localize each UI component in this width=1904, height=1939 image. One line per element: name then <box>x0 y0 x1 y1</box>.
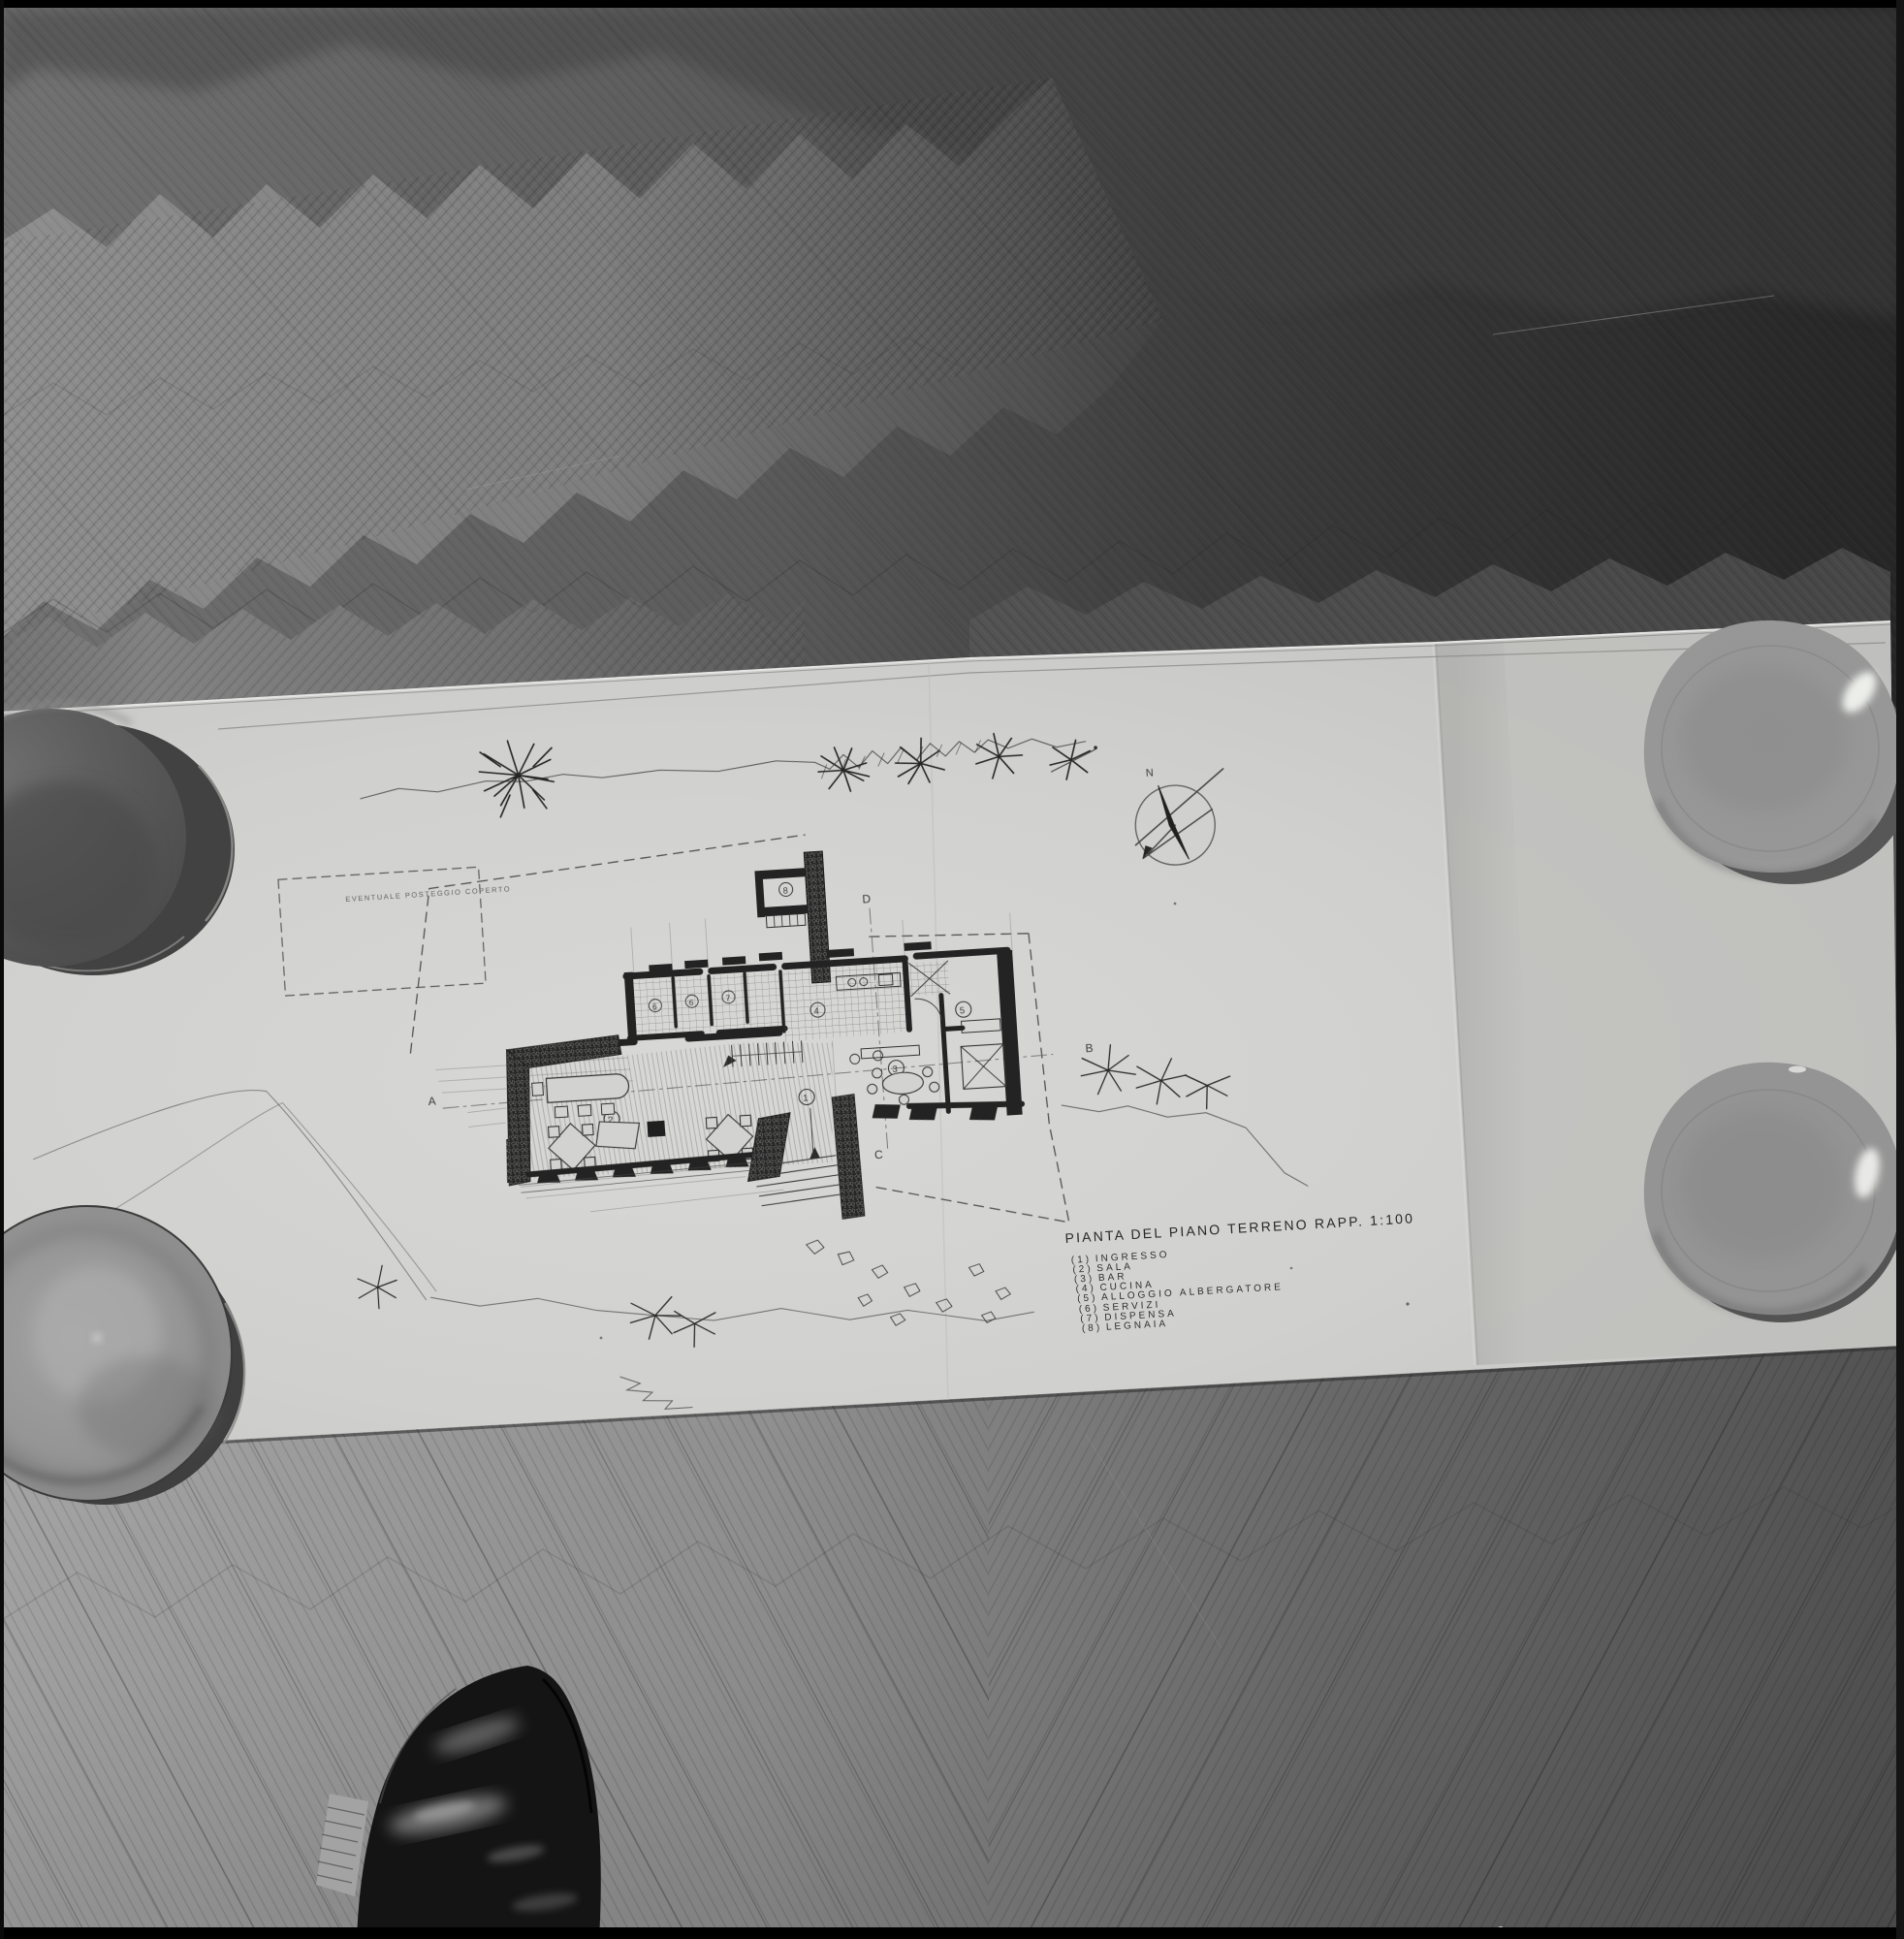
svg-text:C: C <box>874 1148 884 1162</box>
svg-text:B: B <box>1085 1041 1094 1055</box>
svg-text:A: A <box>428 1095 436 1108</box>
svg-text:8: 8 <box>782 885 788 895</box>
svg-text:D: D <box>862 892 872 906</box>
svg-text:5: 5 <box>960 1005 966 1016</box>
svg-text:(8): (8) <box>1082 1322 1103 1334</box>
svg-text:6: 6 <box>652 1001 658 1011</box>
svg-text:6: 6 <box>688 998 694 1007</box>
svg-text:N: N <box>1145 767 1154 779</box>
svg-text:4: 4 <box>813 1006 819 1016</box>
svg-text:7: 7 <box>725 993 731 1002</box>
svg-text:1: 1 <box>803 1093 809 1103</box>
